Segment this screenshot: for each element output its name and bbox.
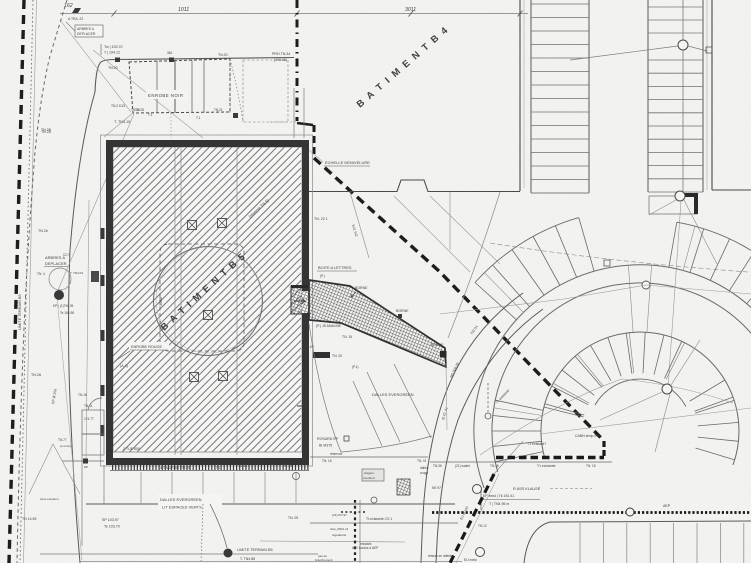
svg-text:TN.16: TN.16 bbox=[78, 393, 87, 397]
svg-text:TN 14.55: TN 14.55 bbox=[22, 517, 36, 521]
svg-text:stagère: stagère bbox=[364, 471, 374, 475]
svg-text:LIMITE TERRAIN B5: LIMITE TERRAIN B5 bbox=[18, 294, 22, 330]
svg-text:TN 2b: TN 2b bbox=[38, 229, 48, 233]
svg-text:(A.3): (A.3) bbox=[120, 364, 128, 368]
svg-text:TN 2B: TN 2B bbox=[41, 128, 52, 132]
svg-text:réseau en attente: réseau en attente bbox=[428, 554, 453, 558]
svg-text:TN.20: TN.20 bbox=[218, 53, 228, 57]
svg-text:BORNE: BORNE bbox=[355, 286, 368, 290]
svg-text:TN. 22 1: TN. 22 1 bbox=[314, 217, 328, 221]
svg-text:regulateVe: regulateVe bbox=[332, 533, 347, 537]
svg-text:NS 97: NS 97 bbox=[432, 486, 441, 490]
svg-text:174.77: 174.77 bbox=[84, 417, 94, 421]
svg-text:T1 existante: T1 existante bbox=[537, 464, 556, 468]
svg-text:T. TN4.88: T. TN4.88 bbox=[240, 557, 255, 561]
svg-text:BORNE: BORNE bbox=[431, 343, 444, 347]
svg-text:TN. 20: TN. 20 bbox=[332, 354, 342, 358]
svg-text:TN. 4: TN. 4 bbox=[37, 272, 45, 276]
svg-text:T. TN4.04: T. TN4.04 bbox=[70, 271, 83, 275]
svg-text:Te 164.98: Te 164.98 bbox=[60, 311, 74, 315]
svg-text:362: 362 bbox=[167, 51, 173, 55]
svg-text:branchement: branchement bbox=[315, 558, 333, 562]
svg-text:TN. 05: TN. 05 bbox=[288, 516, 298, 520]
svg-text:TN.11: TN.11 bbox=[84, 404, 93, 408]
svg-text:T | TN4.95 m: T | TN4.95 m bbox=[489, 502, 509, 506]
svg-text:DALLES EVERGREEN: DALLES EVERGREEN bbox=[372, 392, 414, 397]
svg-text:T | 194.12: T | 194.12 bbox=[104, 51, 120, 55]
svg-text:dalles: dalles bbox=[420, 466, 429, 470]
svg-text:dots_0604 v3: dots_0604 v3 bbox=[330, 527, 348, 531]
svg-text:(21) waterl: (21) waterl bbox=[455, 464, 470, 468]
svg-text:CC?: CC? bbox=[63, 253, 70, 257]
svg-text:TN.15: TN.15 bbox=[490, 464, 499, 468]
svg-text:A TRA .22: A TRA .22 bbox=[68, 17, 83, 21]
svg-text:Tw | 193.70: Tw | 193.70 bbox=[104, 45, 123, 49]
svg-text:rouge: rouge bbox=[420, 471, 428, 475]
svg-text:TN. 15: TN. 15 bbox=[586, 464, 596, 468]
svg-text:EU exist: EU exist bbox=[464, 558, 477, 562]
svg-text:TN.20: TN.20 bbox=[108, 66, 118, 70]
svg-text:TN. 15: TN. 15 bbox=[237, 464, 247, 468]
svg-text:réservoir: réservoir bbox=[330, 452, 343, 456]
svg-text:TN.35: TN.35 bbox=[433, 464, 442, 468]
svg-text:(P.1): (P.1) bbox=[352, 365, 359, 369]
svg-text:LIMITE TERRAIN B5: LIMITE TERRAIN B5 bbox=[237, 548, 273, 552]
svg-text:CABN temp EG: CABN temp EG bbox=[575, 434, 600, 438]
svg-text:3011: 3011 bbox=[405, 7, 416, 13]
svg-text:T1 existant?: T1 existant? bbox=[527, 442, 546, 446]
svg-text:ECHELLE DENIVELURE: ECHELLE DENIVELURE bbox=[325, 160, 370, 165]
svg-text:BORNE: BORNE bbox=[396, 309, 409, 313]
svg-text:(P.) JS ANALINE: (P.) JS ANALINE bbox=[316, 324, 342, 328]
svg-text:4.7 MUR BE TN.25: 4.7 MUR BE TN.25 bbox=[160, 466, 190, 470]
svg-text:TI-existante CS 1: TI-existante CS 1 bbox=[366, 517, 392, 521]
svg-text:overland: overland bbox=[363, 476, 375, 480]
svg-text:ROSARD EP: ROSARD EP bbox=[317, 437, 339, 441]
svg-text:(P.): (P.) bbox=[320, 274, 325, 278]
svg-text:R ASS KLAUSÉ: R ASS KLAUSÉ bbox=[513, 486, 541, 491]
svg-text:TN.28: TN.28 bbox=[135, 108, 144, 112]
svg-text:DEPLACER: DEPLACER bbox=[77, 32, 96, 36]
svg-text:(21)-PO 97: (21)-PO 97 bbox=[332, 513, 347, 517]
svg-text:TN.12: TN.12 bbox=[478, 524, 487, 528]
svg-text:T.1: T.1 bbox=[148, 113, 152, 117]
svg-text:(190.66): (190.66) bbox=[274, 58, 287, 62]
svg-text:2 TUF 800: 2 TUF 800 bbox=[123, 447, 140, 451]
svg-text:TN.2 D13: TN.2 D13 bbox=[111, 104, 125, 108]
svg-text:BI Ø375: BI Ø375 bbox=[319, 444, 332, 448]
svg-text:TN.21: TN.21 bbox=[214, 108, 223, 112]
svg-text:T.1: T.1 bbox=[216, 466, 220, 470]
svg-text:PRH TN.34: PRH TN.34 bbox=[272, 52, 290, 56]
svg-text:(2 omis): (2 omis) bbox=[60, 444, 71, 448]
svg-text:1011: 1011 bbox=[178, 7, 189, 13]
svg-text:TN 2A: TN 2A bbox=[31, 373, 42, 377]
svg-text:EP: EP bbox=[84, 465, 88, 469]
svg-text:Te 103.70: Te 103.70 bbox=[104, 525, 120, 529]
svg-text:AE? boutus à AEP: AE? boutus à AEP bbox=[352, 546, 378, 550]
svg-text:DALLES EVERGREEN: DALLES EVERGREEN bbox=[160, 497, 202, 502]
svg-text:TN. 01: TN. 01 bbox=[417, 459, 427, 463]
svg-text:AEP: AEP bbox=[663, 504, 671, 508]
svg-text:BOITE A LETTRES: BOITE A LETTRES bbox=[318, 265, 352, 270]
svg-text:3008: 3008 bbox=[158, 296, 163, 306]
svg-text:SP 103.97: SP 103.97 bbox=[102, 518, 119, 522]
svg-text:162: 162 bbox=[64, 3, 73, 9]
svg-text:ENROBE ROUGE: ENROBE ROUGE bbox=[131, 345, 162, 349]
svg-text:ENROBE NOIR: ENROBE NOIR bbox=[148, 93, 184, 98]
svg-text:TN.77: TN.77 bbox=[58, 438, 67, 442]
svg-text:TN. 15: TN. 15 bbox=[322, 459, 332, 463]
svg-text:T.1: T.1 bbox=[196, 116, 200, 120]
svg-text:DEPLACER: DEPLACER bbox=[45, 261, 67, 266]
svg-text:EP | (1)TN. 05: EP | (1)TN. 05 bbox=[53, 304, 73, 308]
svg-text:sens ecoulem.: sens ecoulem. bbox=[40, 497, 60, 501]
svg-text:TN. 15: TN. 15 bbox=[342, 335, 352, 339]
svg-text:ARBRES A: ARBRES A bbox=[77, 27, 95, 31]
svg-text:LIT ESPACES VERTS: LIT ESPACES VERTS bbox=[162, 505, 202, 510]
svg-text:TN. 15: TN. 15 bbox=[282, 464, 292, 468]
